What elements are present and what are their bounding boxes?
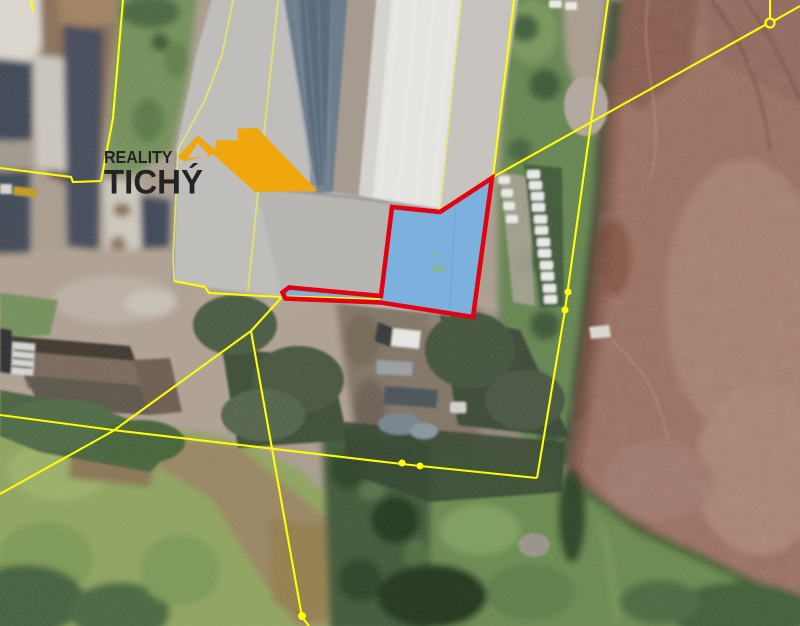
svg-text:+: + [434, 250, 439, 260]
svg-text:184: 184 [430, 265, 444, 274]
svg-text:TICHÝ: TICHÝ [104, 162, 203, 202]
